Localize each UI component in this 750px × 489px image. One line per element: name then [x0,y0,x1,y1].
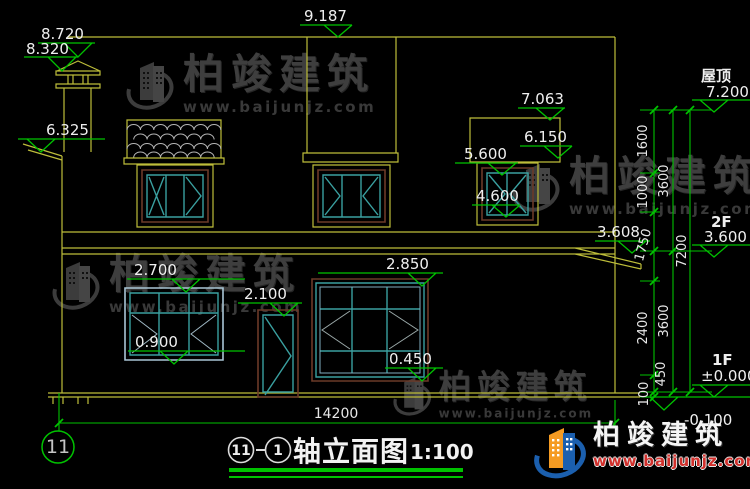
brand-logo: 柏竣建筑 www.baijunjz.com [533,422,750,482]
level-roof: 7.200 [706,83,749,101]
level-chimney-cap: 8.320 [26,40,69,58]
level-2f-window-sill: 4.600 [476,187,519,205]
title-block: 11 1 轴立面图 1:100 [229,435,474,478]
window-1f-big-opening-symbols [322,311,418,349]
brand-building-right [563,433,575,470]
level-2f-window-head: 5.600 [464,145,507,163]
window-2f-left-sash [147,175,203,217]
marker-1f-window-sill [128,351,245,364]
level-right-eave: 3.608 [597,223,640,241]
brand-logo-icon [533,422,587,482]
dim-2400: 2400 [636,311,651,344]
window-glazing [130,173,528,395]
elevation-drawing: 8.720 8.320 9.187 6.325 7.063 6.150 5.60… [0,0,750,489]
dim-3600-lower: 3600 [657,304,672,337]
level-1f-window-sill: 0.900 [135,333,178,351]
dim-3600-upper: 3600 [657,164,672,197]
level-right-dormer-top: 7.063 [521,90,564,108]
door-frame [258,310,298,397]
marker-ridge [300,25,352,37]
level-right-canopy: 6.150 [524,128,567,146]
marker-1f-window-head [127,279,245,292]
level-door-head: 2.100 [244,285,287,303]
level-left-eave: 6.325 [46,121,89,139]
title-scale: 1:100 [410,440,474,464]
marker-chimney-cap [24,57,78,71]
roof-tiles [127,125,221,158]
title-underline-thick [229,468,463,472]
window-2f-left-subframe [142,170,208,222]
title-text: 轴立面图 [293,435,409,468]
marker-1f-bigwindow-sill [385,368,443,381]
level-1f-window-head: 2.700 [134,261,177,279]
axis-bubble-label: 11 [46,436,70,458]
elevation-markers [18,25,750,410]
door-leaf [263,315,293,395]
dim-100: 100 [637,382,652,407]
dim-7200: 7200 [675,234,690,267]
window-2f-middle-subframe [318,170,385,222]
dim-450: 450 [654,362,669,387]
elevation-labels: 8.720 8.320 9.187 6.325 7.063 6.150 5.60… [26,7,750,429]
title-axis-start: 11 [231,443,250,459]
level-1f: ±0.000 [701,367,750,385]
window-2f-middle-sash [323,175,380,217]
marker-right-canopy [520,146,572,158]
level-1f-bigwindow-sill: 0.450 [389,350,432,368]
level-ridge: 9.187 [304,7,347,25]
dormer-left-frame [124,120,224,227]
brand-url: www.baijunjz.com [593,452,750,470]
level-1f-bigwindow-head: 2.850 [386,255,429,273]
dim-1000: 1000 [636,175,651,208]
title-underline-thin [229,476,463,478]
brand-name: 柏竣建筑 [593,422,750,450]
dim-14200: 14200 [314,406,359,422]
marker-1f-level [692,385,750,397]
marker-left-eave [18,139,105,152]
title-axis-end: 1 [273,443,283,459]
axis-bubble: 11 [42,431,74,463]
level-2f: 3.600 [704,228,747,246]
dim-1600: 1600 [636,124,651,157]
brand-building-left [549,428,564,468]
marker-ground-level [645,397,750,410]
